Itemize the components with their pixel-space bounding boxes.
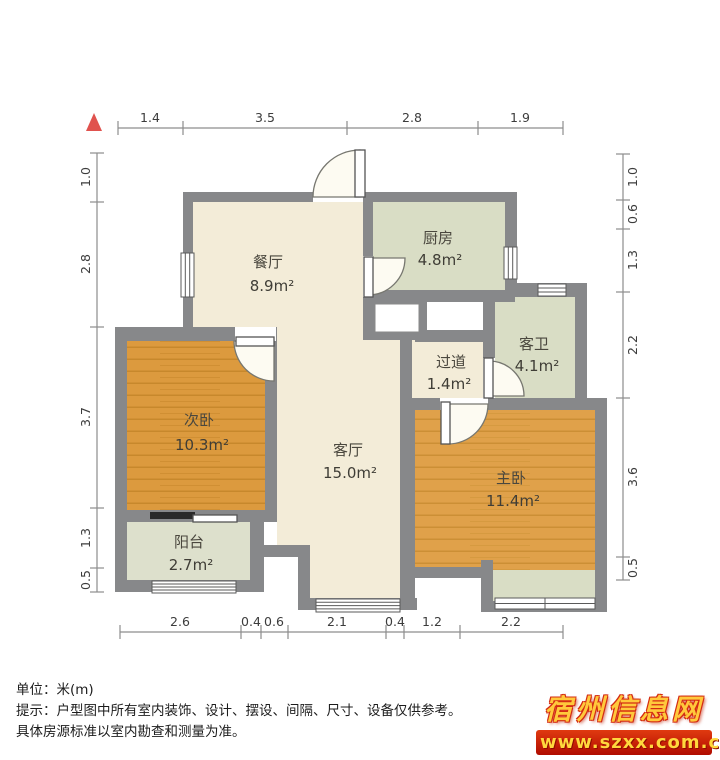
dim-bottom-1: 0.4 [241, 614, 261, 629]
floor-dining [193, 202, 373, 341]
room-area-dining: 8.9m² [250, 277, 294, 295]
disclaimer-notes: 单位：米(m) 提示：户型图中所有室内装饰、设计、摆设、间隔、尺寸、设备仅供参考… [16, 680, 462, 743]
window-kitchen-right [504, 247, 517, 279]
room-area-hallway: 1.4m² [427, 375, 471, 393]
watermark-site-name: 宿州信息网 [536, 688, 712, 728]
room-area-living: 15.0m² [323, 464, 377, 482]
room-label-kitchen: 厨房 [423, 229, 453, 247]
dim-left-2: 3.7 [78, 407, 93, 427]
dim-bottom-3: 2.1 [327, 614, 347, 629]
dim-left-0: 1.0 [78, 167, 93, 187]
dim-bottom-2: 0.6 [264, 614, 284, 629]
window-living-bay [316, 599, 400, 612]
window-master-bay [495, 598, 595, 609]
dim-bottom-0: 2.6 [170, 614, 190, 629]
window-balcony [152, 581, 236, 593]
wall-segment [505, 192, 517, 247]
room-label-master: 主卧 [496, 469, 526, 487]
tip-note-line2: 具体房源标准以室内勘查和测量为准。 [16, 722, 462, 743]
dim-left-4: 0.5 [78, 570, 93, 590]
wall-segment [575, 283, 587, 398]
dim-left-1: 2.8 [78, 254, 93, 274]
floor-plan: 餐厅 8.9m² 厨房 4.8m² 客卫 4.1m² 过道 1.4m² 次卧 1… [0, 0, 720, 660]
room-area-balcony: 2.7m² [169, 556, 213, 574]
site-watermark: 宿州信息网 www.szxx.com.cn [536, 688, 712, 755]
north-arrow-icon [86, 113, 102, 131]
room-label-bathroom: 客卫 [519, 335, 549, 353]
room-label-bedroom2: 次卧 [184, 411, 214, 429]
entry-door [313, 150, 365, 197]
room-label-dining: 餐厅 [253, 253, 283, 271]
wall-segment [115, 341, 127, 592]
dim-top-1: 3.5 [255, 110, 275, 125]
exterior-patch [262, 557, 298, 598]
dim-bottom-6: 2.2 [501, 614, 521, 629]
dim-right-1: 0.6 [625, 204, 640, 224]
dim-top-3: 1.9 [510, 110, 530, 125]
watermark-site-url: www.szxx.com.cn [536, 730, 712, 755]
room-area-bathroom: 4.1m² [515, 357, 559, 375]
dim-right-3: 2.2 [625, 335, 640, 355]
wall-segment [400, 330, 412, 410]
pass-through-niche [375, 304, 419, 332]
tip-note-line1: 提示：户型图中所有室内装饰、设计、摆设、间隔、尺寸、设备仅供参考。 [16, 701, 462, 722]
dim-bottom-4: 0.4 [385, 614, 405, 629]
wall-segment [595, 398, 607, 603]
room-area-master: 11.4m² [486, 492, 540, 510]
room-label-living: 客厅 [333, 441, 363, 459]
dim-top-2: 2.8 [402, 110, 422, 125]
wall-segment [250, 522, 264, 592]
dim-right-2: 1.3 [625, 250, 640, 270]
window-dining-left [181, 253, 194, 297]
dim-right-4: 3.6 [625, 467, 640, 487]
wall-segment [405, 398, 607, 410]
room-label-balcony: 阳台 [174, 533, 204, 551]
room-area-bedroom2: 10.3m² [175, 436, 229, 454]
unit-note: 单位：米(m) [16, 680, 462, 701]
dim-bottom-5: 1.2 [422, 614, 442, 629]
window-bathroom-top [538, 284, 566, 296]
wall-segment [414, 567, 492, 578]
dim-left-3: 1.3 [78, 528, 93, 548]
wall-segment [400, 410, 415, 610]
dim-top-0: 1.4 [140, 110, 160, 125]
floor-plan-svg: 餐厅 8.9m² 厨房 4.8m² 客卫 4.1m² 过道 1.4m² 次卧 1… [0, 0, 720, 660]
wall-segment [262, 545, 310, 557]
dim-right-5: 0.5 [625, 558, 640, 578]
room-area-kitchen: 4.8m² [418, 251, 462, 269]
room-label-hallway: 过道 [436, 353, 466, 371]
dim-right-0: 1.0 [625, 167, 640, 187]
